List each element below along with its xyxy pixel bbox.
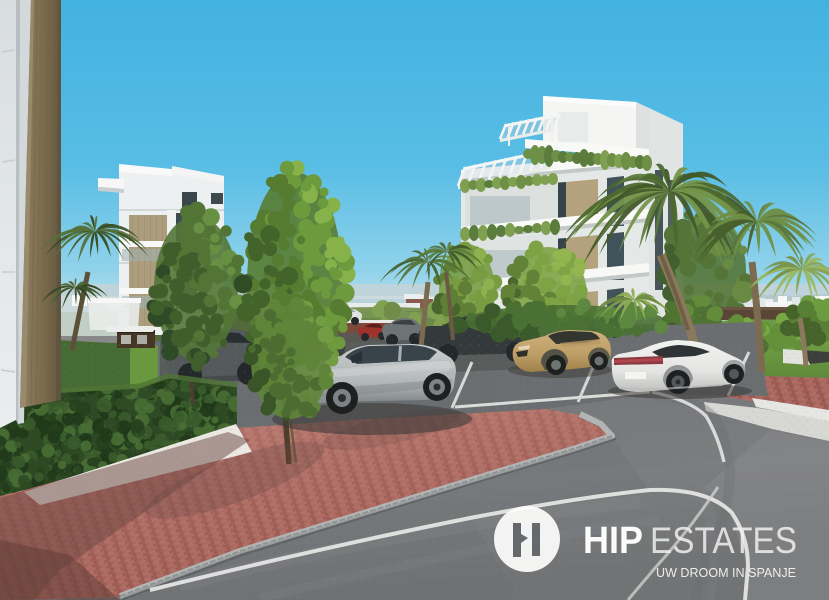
svg-text:ESTATES: ESTATES (650, 520, 797, 561)
svg-text:HIP: HIP (583, 520, 643, 562)
svg-text:UW DROOM IN SPANJE: UW DROOM IN SPANJE (656, 565, 796, 580)
